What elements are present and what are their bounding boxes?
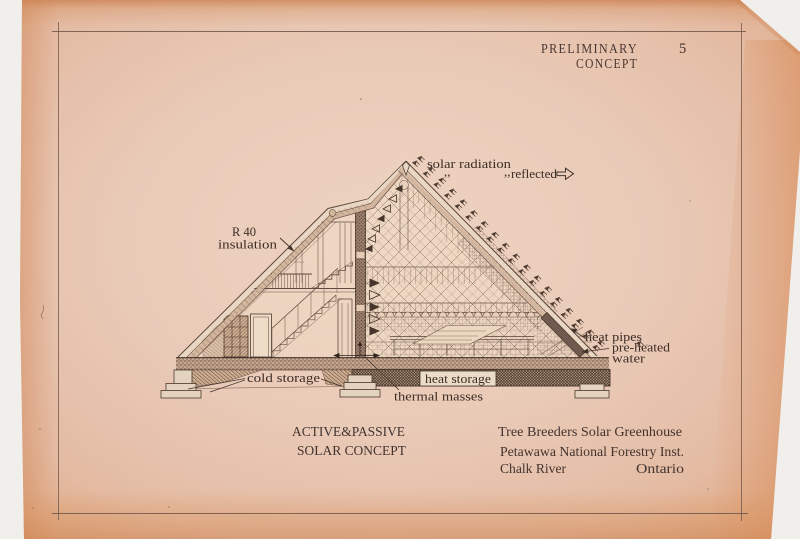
svg-text:PRELIMINARY: PRELIMINARY	[541, 42, 638, 57]
svg-text:thermal masses: thermal masses	[394, 389, 483, 404]
svg-text:heat storage: heat storage	[425, 372, 491, 386]
svg-text:solar radiation: solar radiation	[427, 156, 512, 171]
svg-text:insulation: insulation	[218, 237, 278, 252]
svg-text:Tree Breeders Solar Greenhous: Tree Breeders Solar Greenhouse	[498, 425, 682, 440]
svg-text:ACTIVE&PASSIVE: ACTIVE&PASSIVE	[292, 425, 405, 440]
svg-text:Petawawa National Forestry Ins: Petawawa National Forestry Inst.	[500, 445, 684, 460]
svg-text:reflected: reflected	[511, 166, 557, 181]
svg-text:Chalk River: Chalk River	[500, 462, 566, 477]
svg-text:water: water	[612, 351, 646, 366]
svg-text:Ontario: Ontario	[636, 462, 684, 477]
svg-text:,,: ,,	[504, 164, 511, 179]
svg-text:cold storage: cold storage	[247, 370, 320, 385]
svg-text:,,: ,,	[444, 164, 451, 179]
svg-text:SOLAR CONCEPT: SOLAR CONCEPT	[297, 444, 406, 459]
svg-text:5: 5	[679, 41, 686, 57]
svg-text:CONCEPT: CONCEPT	[576, 57, 638, 72]
